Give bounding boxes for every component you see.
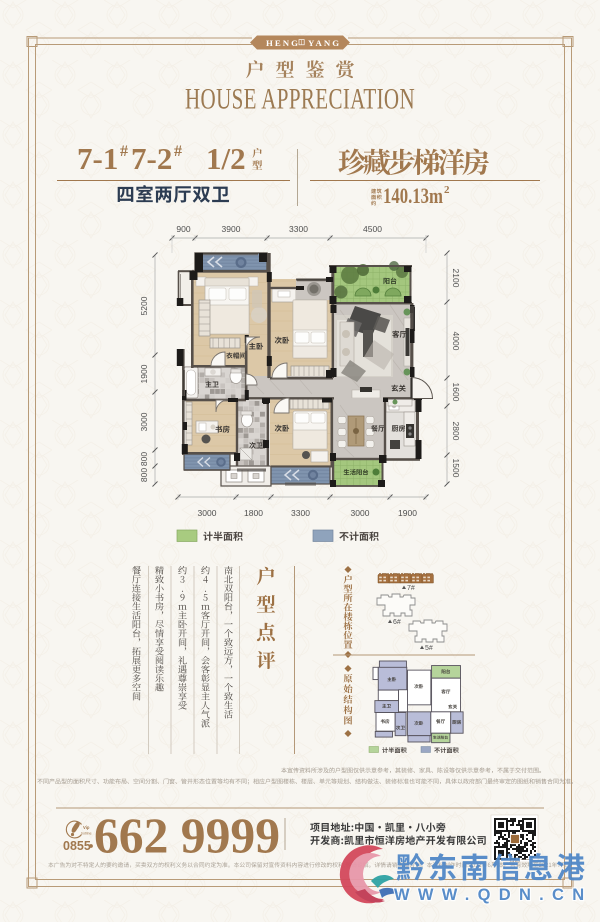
svg-text:0855: 0855: [63, 839, 91, 853]
svg-text:#: #: [120, 143, 128, 160]
svg-text:1800: 1800: [244, 508, 263, 518]
svg-text:5200: 5200: [139, 296, 149, 315]
svg-text:hotline: hotline: [81, 832, 92, 836]
svg-text:7-1: 7-1: [77, 141, 118, 176]
svg-text:1900: 1900: [398, 508, 417, 518]
svg-text:HOUSE APPRECIATION: HOUSE APPRECIATION: [185, 83, 415, 116]
svg-text:WWW.QDN.CN: WWW.QDN.CN: [394, 886, 592, 904]
svg-text:3300: 3300: [291, 508, 310, 518]
svg-text:2800: 2800: [451, 422, 461, 441]
svg-text:7#: 7#: [407, 585, 415, 592]
svg-text:#: #: [174, 143, 182, 160]
svg-text:Vip: Vip: [83, 825, 90, 830]
svg-text:140.13m: 140.13m: [383, 183, 443, 208]
svg-text:7-2: 7-2: [131, 141, 172, 176]
svg-text:3300: 3300: [289, 224, 308, 234]
svg-text:3900: 3900: [222, 224, 241, 234]
svg-text:3000: 3000: [139, 412, 149, 431]
svg-text:1500: 1500: [451, 459, 461, 478]
svg-text:HENG: HENG: [266, 38, 300, 48]
svg-text:662 9999: 662 9999: [94, 807, 280, 863]
svg-text:5#: 5#: [425, 645, 433, 652]
svg-text:4000: 4000: [451, 332, 461, 351]
svg-text:6#: 6#: [393, 619, 401, 626]
svg-text:900: 900: [176, 224, 190, 234]
svg-text:1/2: 1/2: [206, 141, 246, 176]
svg-text:4500: 4500: [363, 224, 382, 234]
svg-text:1600: 1600: [451, 383, 461, 402]
svg-text:800: 800: [139, 468, 149, 482]
svg-text:800: 800: [139, 452, 149, 466]
svg-text:2: 2: [444, 184, 450, 196]
svg-text:1900: 1900: [139, 364, 149, 383]
svg-text:YANG: YANG: [308, 38, 341, 48]
svg-text:3000: 3000: [198, 508, 217, 518]
svg-text:3000: 3000: [351, 508, 370, 518]
svg-text:2100: 2100: [451, 269, 461, 288]
